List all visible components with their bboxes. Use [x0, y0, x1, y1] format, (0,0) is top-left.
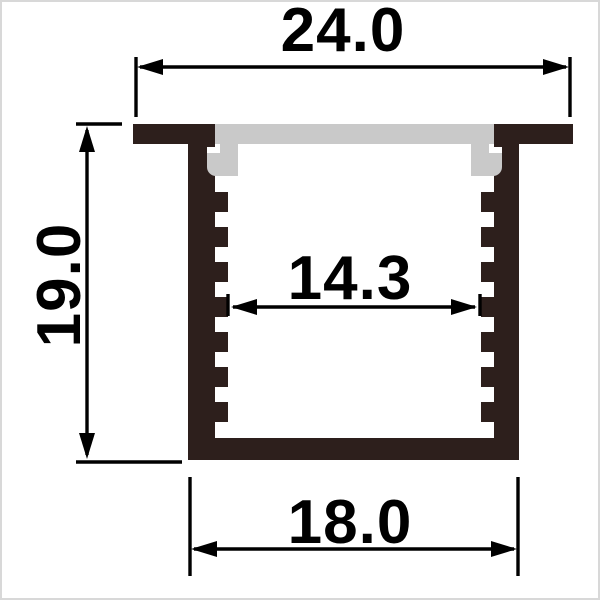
- arrowhead-left-icon: [231, 299, 257, 315]
- arrowhead-down-icon: [79, 433, 95, 459]
- profile-tooth: [481, 192, 494, 212]
- profile-bottom-wall: [188, 438, 519, 460]
- profile-tooth: [215, 332, 228, 352]
- diffuser-top-plate: [215, 124, 494, 144]
- dimension-label-top-width: 24.0: [281, 2, 406, 65]
- profile-tooth: [215, 192, 228, 212]
- profile-tooth: [481, 367, 494, 387]
- drawing-canvas: 24.0 19.0: [0, 0, 600, 600]
- profile-tooth: [481, 297, 494, 317]
- dimension-inner-width: 14.3: [228, 244, 480, 316]
- profile-tooth: [215, 367, 228, 387]
- diffuser-clip-foot-left: [207, 153, 238, 176]
- diffuser-clip-foot-right: [471, 153, 502, 176]
- arrowhead-right-icon: [543, 59, 569, 75]
- dimension-top-width-lines: [136, 57, 570, 117]
- profile-tooth: [481, 402, 494, 422]
- profile-tooth: [215, 262, 228, 282]
- profile-tooth: [481, 227, 494, 247]
- profile-left-wall: [188, 142, 215, 460]
- dimension-top-width: 24.0: [136, 2, 570, 117]
- profile-cross-section-drawing: 24.0 19.0: [2, 2, 598, 598]
- profile-tooth: [215, 297, 228, 317]
- arrowhead-left-icon: [137, 59, 163, 75]
- dimension-overall-height: 19.0: [25, 124, 182, 462]
- profile-tooth: [215, 402, 228, 422]
- arrowhead-right-icon: [451, 299, 477, 315]
- profile-tooth: [215, 227, 228, 247]
- clip-notches: [207, 147, 502, 161]
- diffuser-cover: [207, 124, 502, 176]
- arrowhead-right-icon: [491, 541, 517, 557]
- arrowhead-left-icon: [191, 541, 217, 557]
- profile-right-wall: [494, 142, 519, 460]
- profile-tooth: [481, 262, 494, 282]
- dimension-label-bottom-width: 18.0: [288, 488, 413, 557]
- dimension-label-overall-height: 19.0: [25, 223, 94, 348]
- dimension-label-inner-width: 14.3: [288, 244, 413, 313]
- profile-tooth: [481, 332, 494, 352]
- arrowhead-up-icon: [79, 126, 95, 152]
- dimension-bottom-width: 18.0: [190, 477, 518, 576]
